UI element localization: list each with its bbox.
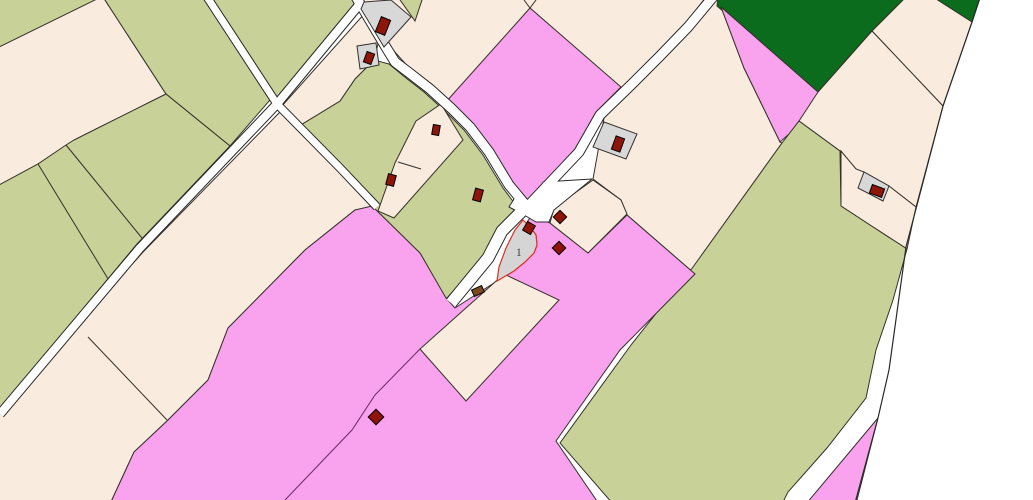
svg-text:1: 1 xyxy=(516,247,522,259)
